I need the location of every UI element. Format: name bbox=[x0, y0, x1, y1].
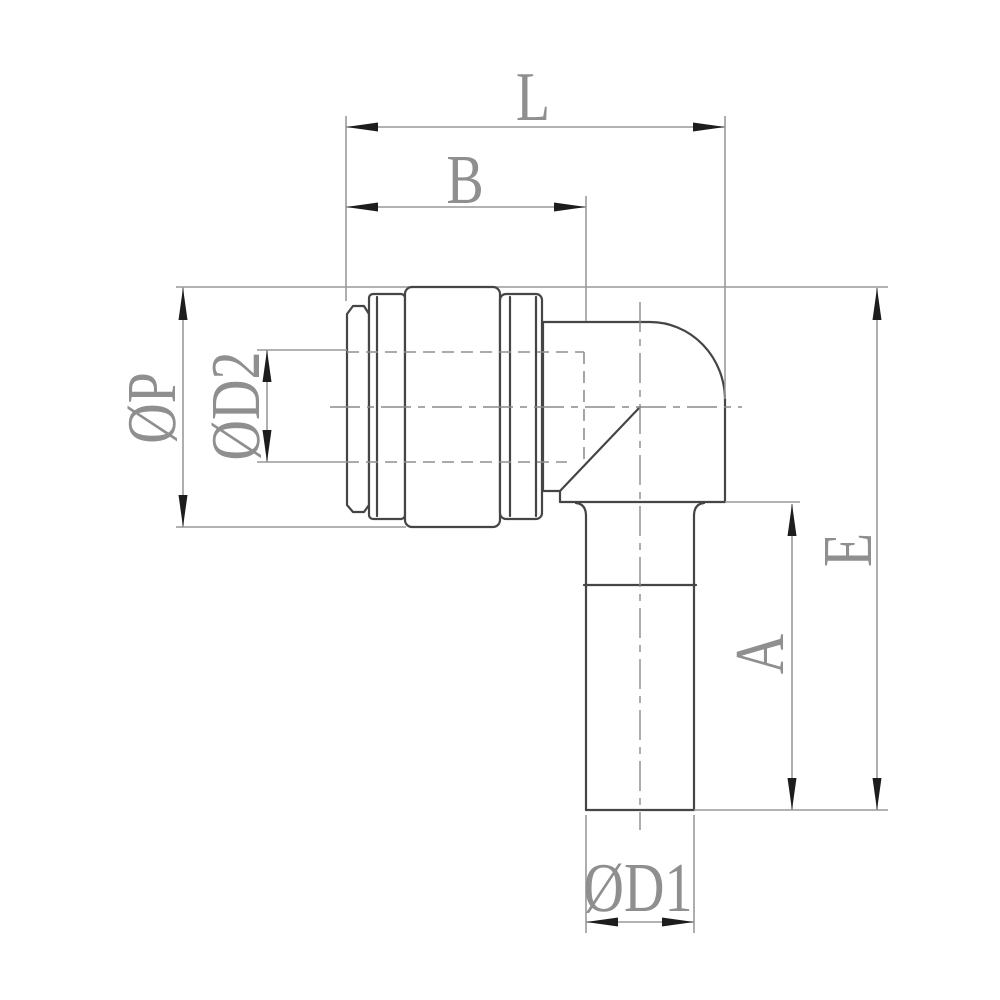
stem-left-edge bbox=[576, 503, 586, 810]
arrow-P-bottom bbox=[179, 495, 188, 527]
arrow-E-top bbox=[873, 288, 882, 320]
engineering-drawing-canvas: L B ØP ØD2 A E ØD1 bbox=[0, 0, 1000, 1000]
arrow-L-left bbox=[346, 123, 378, 132]
collet-tip bbox=[347, 306, 369, 512]
stem-right-edge bbox=[694, 503, 704, 810]
elbow-fitting-drawing bbox=[0, 0, 1000, 1000]
dim-label-tube-insert-diameter: ØD2 bbox=[202, 352, 272, 461]
arrow-A-bottom bbox=[788, 778, 797, 810]
dim-label-stem-diameter: ØD1 bbox=[584, 854, 693, 924]
arrow-B-right bbox=[554, 203, 586, 212]
arrow-B-left bbox=[346, 203, 378, 212]
arrow-P-top bbox=[179, 288, 188, 320]
dim-label-stem-length: A bbox=[726, 634, 796, 674]
dim-label-overall-height: E bbox=[814, 533, 884, 567]
dimension-arrowheads bbox=[179, 123, 882, 927]
dim-label-cap-length: B bbox=[446, 146, 483, 216]
arrow-E-bottom bbox=[873, 778, 882, 810]
arrow-A-top bbox=[788, 504, 797, 536]
dim-label-overall-length: L bbox=[516, 63, 550, 133]
dim-label-cap-outer-diameter: ØP bbox=[118, 372, 188, 444]
arrow-L-right bbox=[693, 123, 725, 132]
fitting-body-outline bbox=[176, 287, 888, 810]
